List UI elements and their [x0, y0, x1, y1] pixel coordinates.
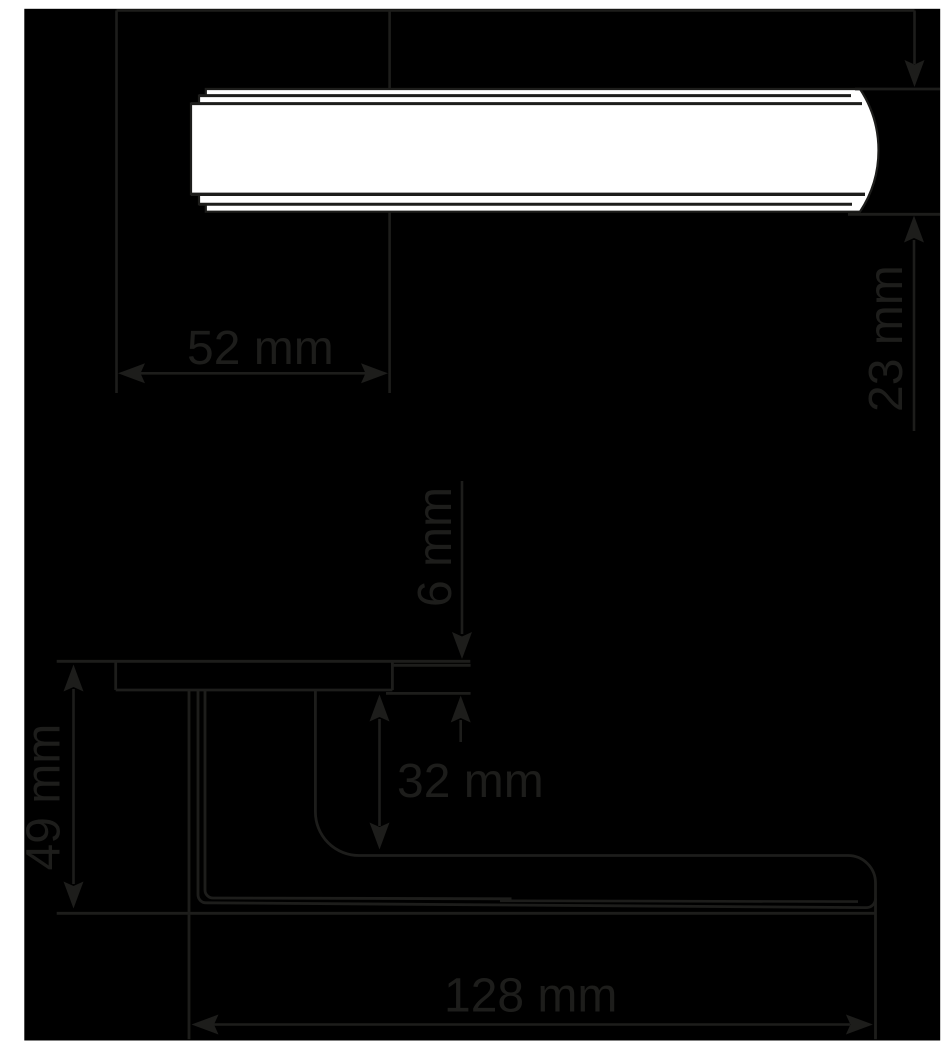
svg-text:49 mm: 49 mm — [18, 724, 71, 871]
svg-text:128 mm: 128 mm — [444, 970, 617, 1023]
svg-text:32 mm: 32 mm — [397, 755, 544, 808]
svg-text:23 mm: 23 mm — [860, 265, 913, 412]
svg-text:6 mm: 6 mm — [409, 487, 462, 607]
svg-text:52 mm: 52 mm — [187, 322, 334, 375]
